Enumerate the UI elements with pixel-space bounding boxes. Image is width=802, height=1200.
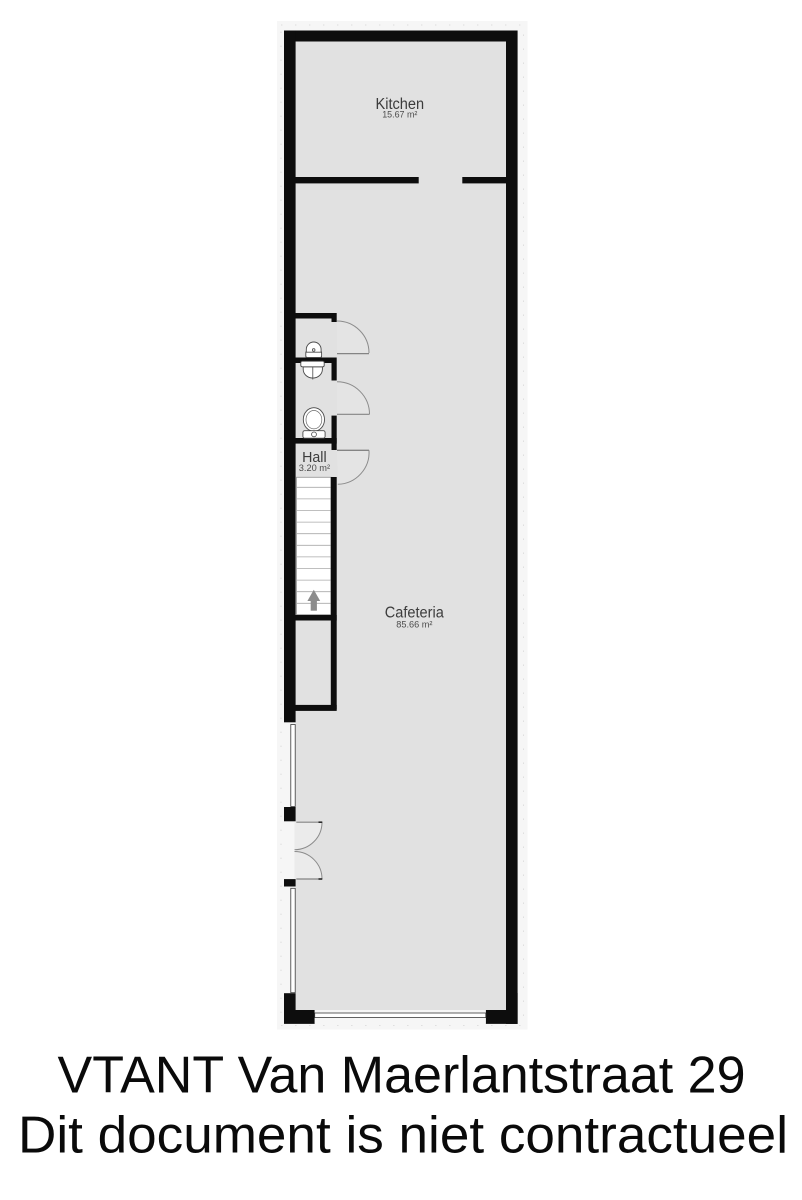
svg-text:Dit document is niet contractu: Dit document is niet contractueel (18, 1106, 788, 1164)
svg-text:3.20 m²: 3.20 m² (299, 463, 331, 474)
svg-text:85.66 m²: 85.66 m² (396, 620, 433, 631)
svg-text:15.67 m²: 15.67 m² (382, 110, 418, 121)
svg-text:VTANT Van Maerlantstraat 29: VTANT Van Maerlantstraat 29 (58, 1046, 746, 1104)
